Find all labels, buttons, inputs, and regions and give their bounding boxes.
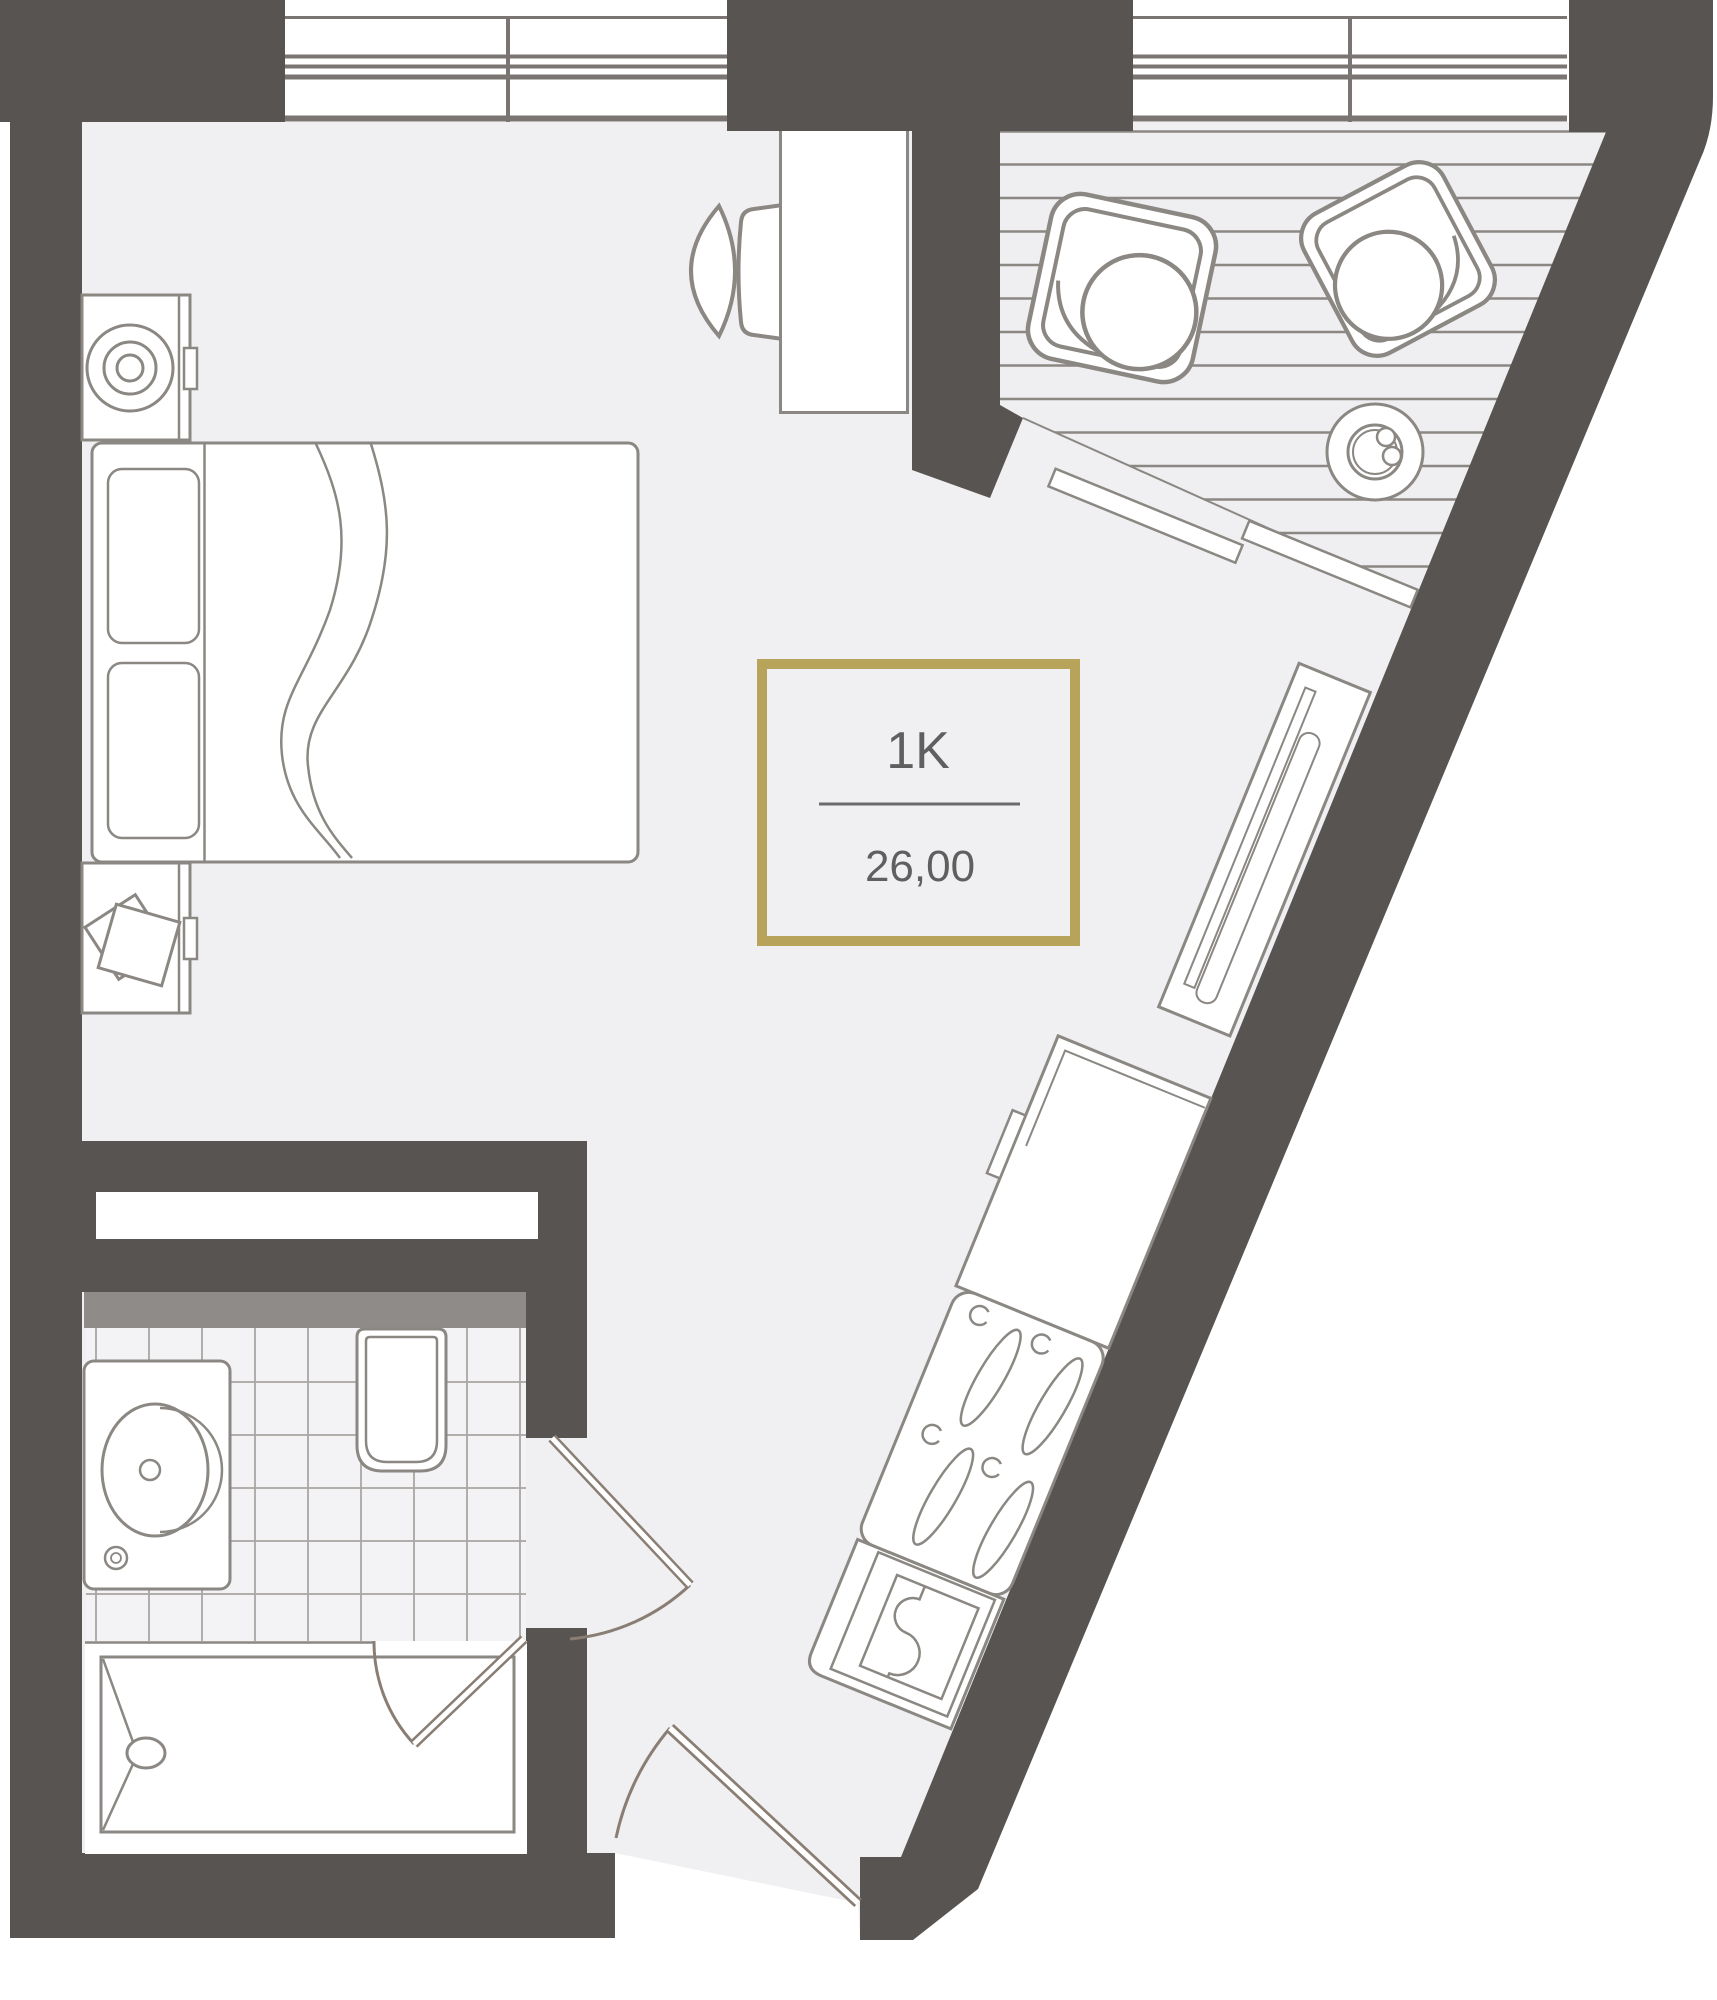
svg-text:26,00: 26,00 xyxy=(865,842,975,891)
svg-text:1K: 1K xyxy=(886,722,950,780)
